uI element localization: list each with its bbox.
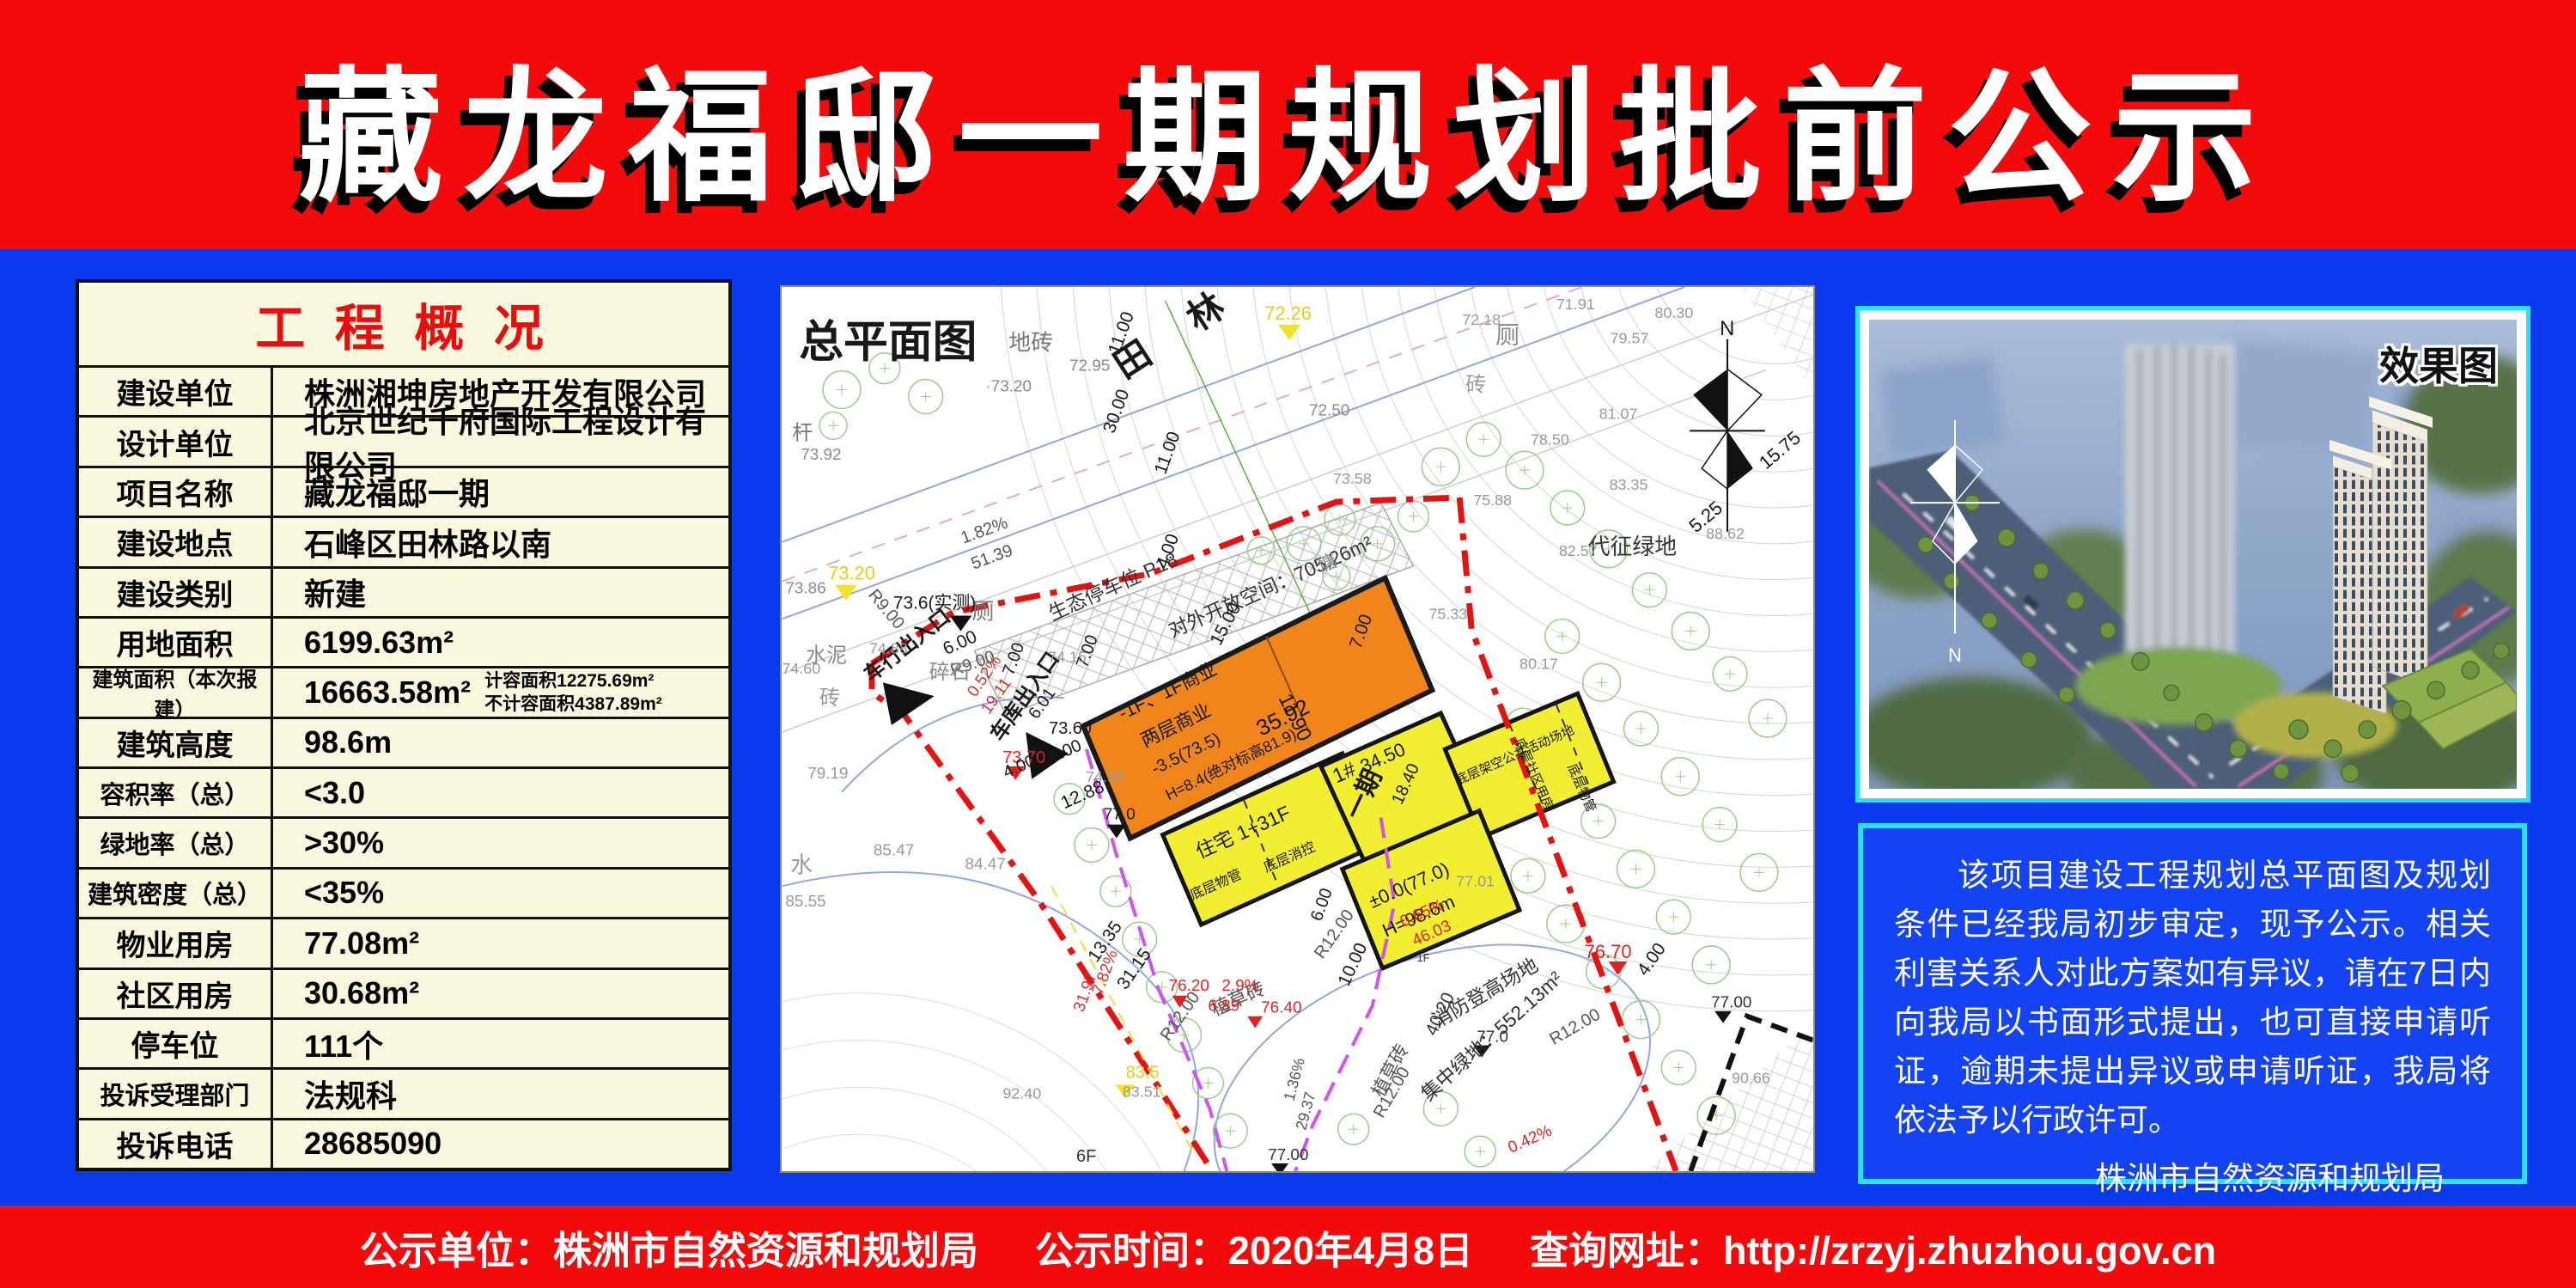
poster: 藏龙福邸一期规划批前公示 工 程 概 况 建设单位株洲湘坤房地产开发有限公司设计…: [0, 0, 2576, 1288]
plan-label: 74.15: [1048, 648, 1087, 665]
row-label: 投诉受理部门: [79, 1070, 273, 1117]
table-rows: 建设单位株洲湘坤房地产开发有限公司设计单位北京世纪千府国际工程设计有限公司项目名…: [79, 368, 728, 1168]
table-row: 投诉受理部门法规科: [79, 1070, 728, 1120]
row-label: 停车位: [79, 1020, 273, 1067]
plan-label: 85.47: [874, 841, 914, 859]
render-caption: 效果图: [2379, 335, 2498, 392]
row-notes: 计容面积12275.69m²不计容面积4387.89m²: [484, 669, 662, 717]
plan-label: 碎石: [929, 661, 971, 684]
row-label: 建筑面积（本次报建）: [79, 668, 273, 716]
table-row: 物业用房77.08m²: [79, 919, 728, 969]
table-row: 建设地点石峰区田林路以南: [79, 518, 728, 568]
row-label: 容积率（总）: [79, 769, 273, 816]
plan-label: 地砖: [1008, 331, 1053, 356]
plan-label: 2.9%: [1221, 977, 1258, 995]
site-road-curve: [782, 872, 1198, 1171]
plan-label: 85.55: [785, 893, 825, 911]
plan-label: 75.88: [1473, 491, 1512, 509]
plan-label: 72.95: [1069, 357, 1110, 375]
plan-label: 76.20: [1169, 977, 1209, 995]
row-value: 藏龙福邸一期: [273, 468, 728, 516]
project-overview-table: 工 程 概 况 建设单位株洲湘坤房地产开发有限公司设计单位北京世纪千府国际工程设…: [76, 279, 732, 1171]
north-compass: [1690, 339, 1765, 532]
plan-label: 72.50: [1309, 401, 1349, 419]
footer-unit: 公示单位：株洲市自然资源和规划局: [360, 1219, 978, 1275]
plan-label: 砖: [819, 687, 840, 710]
footer-url: 查询网址：http://zrzyj.zhuzhou.gov.cn: [1530, 1219, 2216, 1275]
plan-label: 6F: [1076, 1147, 1096, 1166]
plan-label: 81.07: [1599, 405, 1638, 422]
render-panel: N 效果图: [1855, 306, 2530, 803]
row-value: 98.6m: [273, 719, 728, 766]
plan-label: 79.57: [1611, 330, 1649, 347]
row-label: 建设地点: [79, 518, 273, 565]
table-row: 绿地率（总）>30%: [79, 819, 728, 869]
plan-label: 74.88: [869, 639, 908, 656]
plan-label: 1F: [1416, 951, 1429, 964]
plan-label: 88.62: [1706, 525, 1745, 542]
plan-label: 75.33: [1428, 605, 1467, 622]
row-value: <3.0: [273, 769, 728, 816]
table-row: 投诉电话28685090: [79, 1120, 728, 1168]
table-row: 建筑面积（本次报建）16663.58m²计容面积12275.69m²不计容面积4…: [79, 668, 728, 718]
row-label: 物业用房: [79, 919, 273, 967]
row-value: 111个: [273, 1020, 728, 1067]
plan-label: 73.6(实测): [893, 594, 976, 613]
plan-label: 83.35: [1610, 476, 1648, 493]
row-value: 石峰区田林路以南: [273, 518, 728, 565]
plan-label: 6.00: [1046, 736, 1084, 767]
plan-label: 73.86: [785, 580, 825, 598]
plan-label: 92.40: [1002, 1084, 1041, 1102]
footer-bar: 公示单位：株洲市自然资源和规划局 公示时间：2020年4月8日 查询网址：htt…: [0, 1206, 2576, 1288]
plan-label: 水: [790, 852, 813, 877]
notice-box: 该项目建设工程规划总平面图及规划条件已经我局初步审定，现予公示。相关利害关系人对…: [1858, 823, 2527, 1184]
plan-label: 73.58: [1333, 470, 1372, 487]
plan-label: 6.00: [1307, 886, 1337, 924]
plan-label: 厕: [1495, 322, 1519, 349]
row-label: 建设类别: [79, 569, 273, 616]
table-row: 项目名称藏龙福邸一期: [79, 468, 728, 518]
plan-label: 74.36: [1086, 768, 1124, 785]
row-value: 北京世纪千府国际工程设计有限公司: [273, 418, 728, 465]
plan-label: 76.40: [1261, 999, 1301, 1017]
table-title: 工 程 概 况: [79, 283, 728, 368]
plan-label: 84.47: [965, 855, 1006, 873]
hatch-bottom-right: [1646, 1023, 1812, 1171]
plan-label: 77.00: [1268, 1146, 1308, 1164]
row-label: 用地面积: [79, 619, 273, 666]
row-label: 建筑密度（总）: [79, 870, 273, 917]
row-value: 77.08m²: [273, 919, 728, 967]
table-row: 用地面积6199.63m²: [79, 619, 728, 668]
plan-label: 砖: [1465, 374, 1486, 397]
table-row: 建筑密度（总）<35%: [79, 870, 728, 919]
plan-label: 71.91: [1556, 296, 1595, 313]
row-value: 新建: [273, 569, 728, 616]
notice-signature: 株洲市自然资源和规划局: [1894, 1157, 2491, 1201]
plan-label: 厕: [971, 600, 994, 624]
plan-label: 74.60: [782, 660, 820, 677]
site-plan-panel: 总平面图田 林 路地砖72.95·73.2072.5072.2673.2073.…: [780, 285, 1815, 1173]
row-value: <35%: [273, 870, 728, 917]
page-title: 藏龙福邸一期规划批前公示: [299, 21, 2278, 229]
table-row: 建筑高度98.6m: [79, 719, 728, 769]
row-label: 设计单位: [79, 418, 273, 465]
row-label: 建筑高度: [79, 719, 273, 766]
table-row: 设计单位北京世纪千府国际工程设计有限公司: [79, 418, 728, 467]
photo-compass-n: N: [1948, 644, 1962, 666]
plan-label: 73.60: [1049, 719, 1092, 738]
row-label: 项目名称: [79, 468, 273, 516]
site-plan-drawing: 总平面图田 林 路地砖72.95·73.2072.5072.2673.2073.…: [782, 287, 1813, 1171]
plan-label: 79.19: [807, 765, 848, 783]
plan-label: 77.0: [1104, 806, 1136, 824]
plan-label: ·73.20: [985, 378, 1032, 396]
plan-label: 15.75: [1755, 427, 1805, 473]
plan-label: 77.00: [1711, 994, 1751, 1012]
hatch-corner: [1740, 287, 1813, 390]
row-label: 绿地率（总）: [79, 819, 273, 866]
row-value: 28685090: [273, 1120, 728, 1168]
plan-label: 80.17: [1519, 655, 1558, 672]
plan-label: 77.0: [1477, 1029, 1508, 1047]
row-value: 16663.58m²计容面积12275.69m²不计容面积4387.89m²: [273, 668, 728, 716]
table-row: 容积率（总）<3.0: [79, 769, 728, 819]
plan-label: 73.92: [801, 446, 841, 464]
plan-label: 4.00: [1634, 939, 1670, 980]
plan-label: 90.66: [1732, 1069, 1770, 1086]
footer-time: 公示时间：2020年4月8日: [1035, 1219, 1473, 1275]
row-label: 建设单位: [79, 368, 273, 415]
plan-label: 51.39: [969, 541, 1015, 574]
plan-label: 杆: [792, 421, 813, 444]
plan-label: 80.30: [1654, 304, 1693, 321]
render-photo: N 效果图: [1869, 320, 2517, 789]
row-value: 30.68m²: [273, 970, 728, 1017]
plan-label: 83.5: [1126, 1063, 1160, 1082]
plan-label: 30.00: [1099, 387, 1134, 436]
plan-label: 82.57: [1559, 542, 1598, 559]
table-row: 社区用房30.68m²: [79, 970, 728, 1020]
row-label: 投诉电话: [79, 1120, 273, 1168]
plan-label: 76.70: [1585, 941, 1632, 962]
plan-label: 78.50: [1531, 430, 1569, 448]
plan-label: 11.00: [1151, 429, 1184, 477]
plan-label: 72.26: [1264, 302, 1312, 324]
table-row: 停车位111个: [79, 1020, 728, 1070]
plan-label: 总平面图: [799, 317, 977, 367]
plan-label: 77.01: [1456, 872, 1495, 889]
row-label: 社区用房: [79, 970, 273, 1017]
row-value: >30%: [273, 819, 728, 866]
plan-label: 83.51: [1123, 1083, 1161, 1100]
row-value: 6199.63m²: [273, 619, 728, 666]
row-value: 法规科: [273, 1070, 728, 1117]
plan-label: N: [1720, 317, 1734, 340]
plan-label: 6.89: [1208, 998, 1239, 1016]
notice-body: 该项目建设工程规划总平面图及规划条件已经我局初步审定，现予公示。相关利害关系人对…: [1894, 851, 2491, 1145]
header-banner: 藏龙福邸一期规划批前公示: [0, 0, 2576, 249]
table-row: 建设类别新建: [79, 569, 728, 619]
plan-label: 73.20: [828, 563, 875, 584]
plan-label: 代征绿地: [1588, 534, 1678, 559]
